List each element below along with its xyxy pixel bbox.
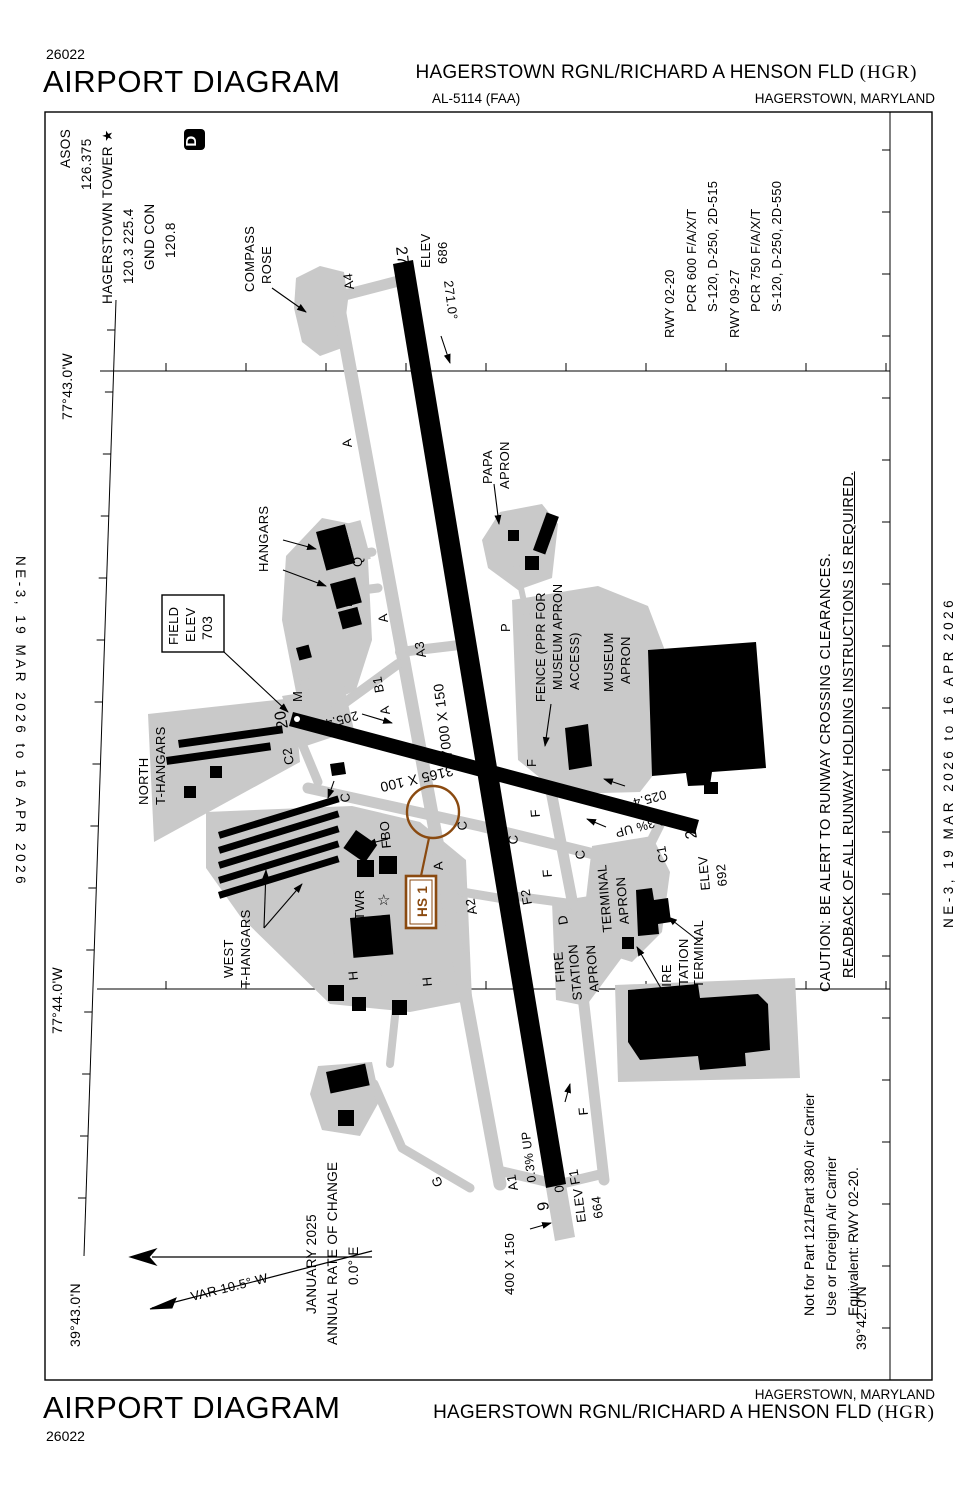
taxiway-label: A2 bbox=[462, 897, 480, 916]
taxiway-label: Q bbox=[350, 557, 365, 567]
variation-rate-value: 0.0° E bbox=[346, 1246, 361, 1285]
west-t-hangars-label: T-HANGARS bbox=[238, 909, 253, 988]
note-line3: Equivalent: RWY 02-20. bbox=[845, 1167, 861, 1316]
longitude-label: 77°43.0'W bbox=[59, 353, 75, 420]
elev-692-value: 692 bbox=[713, 863, 730, 887]
fence-note: MUSEUM APRON bbox=[551, 584, 565, 690]
caution-line2: READBACK OF ALL RUNWAY HOLDING INSTRUCTI… bbox=[841, 471, 857, 978]
fbo-label: FBO bbox=[377, 820, 394, 849]
note-line1: Not for Part 121/Part 380 Air Carrier bbox=[801, 1093, 817, 1316]
rwy-02-20-pcr: PCR 600 F/A/X/T bbox=[684, 209, 699, 312]
tower-label: HAGERSTOWN TOWER ★ bbox=[100, 129, 116, 304]
asos-label: ASOS bbox=[58, 129, 73, 168]
rwy-09-27-pcr: PCR 750 F/A/X/T bbox=[748, 209, 763, 312]
tower-freqs: 120.3 225.4 bbox=[121, 208, 136, 284]
papa-apron-label: APRON bbox=[497, 441, 512, 489]
taxiway-label: C1 bbox=[653, 845, 671, 865]
taxiway-label: A bbox=[339, 438, 355, 449]
taxiway-label: A bbox=[430, 861, 446, 871]
elev-686-label: ELEV bbox=[418, 234, 433, 268]
city-state-bottom: HAGERSTOWN, MARYLAND bbox=[500, 1387, 935, 1402]
tower-label: TWR bbox=[352, 890, 367, 921]
airport-name-text: HAGERSTOWN RGNL/RICHARD A HENSON FLD bbox=[433, 1402, 877, 1423]
runway-27-number: 27 bbox=[392, 245, 411, 265]
hotspot-label: HS 1 bbox=[415, 886, 430, 917]
airport-diagram-page: 26022 AIRPORT DIAGRAM HAGERSTOWN RGNL/RI… bbox=[0, 0, 978, 1500]
airport-id-text: (HGR) bbox=[877, 1402, 935, 1423]
fire-station-label: FIRE bbox=[659, 964, 674, 995]
taxiway-label: F1 bbox=[565, 1168, 583, 1186]
note-line2: Use or Foreign Air Carrier bbox=[823, 1157, 839, 1317]
gnd-con-freq: 120.8 bbox=[163, 222, 178, 258]
rwy27-bearing: 271.0° bbox=[441, 280, 461, 321]
taxiway-label: A bbox=[377, 705, 393, 716]
north-t-hangars-label: NORTH bbox=[136, 758, 151, 805]
taxiway-label: B1 bbox=[369, 675, 387, 694]
gnd-con-label: GND CON bbox=[142, 203, 157, 270]
compass-rose-label: ROSE bbox=[259, 246, 274, 284]
field-elev-value: 703 bbox=[199, 616, 215, 640]
asos-freq: 126.375 bbox=[79, 138, 94, 190]
taxiway-label: C bbox=[572, 849, 588, 860]
taxiway-label: P bbox=[498, 623, 513, 632]
taxiway-label: C bbox=[505, 834, 521, 845]
taxiway-label: A4 bbox=[340, 272, 357, 290]
elev-686-value: 686 bbox=[435, 241, 450, 264]
caution-line1: CAUTION: BE ALERT TO RUNWAY CROSSING CLE… bbox=[818, 553, 834, 992]
taxiway-label: C bbox=[337, 792, 353, 803]
chart-code-bottom: 26022 bbox=[46, 1428, 85, 1444]
rwy-9-27-dimensions: 7000 X 150 bbox=[430, 683, 455, 759]
taxiway-label: C2 bbox=[279, 747, 297, 767]
latitude-label: 39°43.0'N bbox=[67, 1283, 83, 1347]
tower-star-icon: ☆ bbox=[377, 892, 391, 909]
fence-note: FENCE (PPR FOR bbox=[534, 592, 548, 702]
rwy-02-20-label: RWY 02-20 bbox=[662, 269, 677, 338]
museum-apron-label: APRON bbox=[618, 636, 633, 684]
taxiway-label: F bbox=[527, 809, 543, 819]
rwy-09-27-label: RWY 09-27 bbox=[727, 269, 742, 338]
taxiway-label: F2 bbox=[517, 888, 535, 906]
rwy20-threshold-point bbox=[294, 716, 300, 722]
hangars-label: HANGARS bbox=[256, 506, 271, 572]
elev-664-label: ELEV bbox=[570, 1187, 589, 1223]
taxiway-label: N1 bbox=[340, 590, 355, 607]
museum-apron-label: MUSEUM bbox=[601, 632, 616, 692]
taxiway-label: A1 bbox=[503, 1173, 521, 1192]
variation-rate-label: ANNUAL RATE OF CHANGE bbox=[325, 1162, 340, 1345]
stopway-dimensions: 400 X 150 bbox=[502, 1233, 517, 1295]
elev-664-value: 664 bbox=[588, 1195, 606, 1219]
taxiway-label: C bbox=[454, 820, 470, 831]
elev-692-label: ELEV bbox=[695, 855, 713, 891]
variation-label: VAR 10.5° W bbox=[189, 1270, 270, 1304]
taxiway-label: A3 bbox=[411, 640, 429, 659]
runway-20-number: 20 bbox=[272, 709, 292, 730]
taxiway-label: H bbox=[345, 970, 361, 981]
runway-9-number: 9 bbox=[535, 1200, 553, 1211]
d-atis-symbol: D bbox=[183, 135, 200, 146]
variation-date-label: JANUARY 2025 bbox=[304, 1214, 319, 1314]
taxiway-label: M bbox=[290, 691, 305, 702]
rwy-02-20-strength: S-120, D-250, 2D-515 bbox=[705, 181, 720, 312]
papa-apron-label: PAPA bbox=[480, 450, 495, 484]
airport-name-bottom: HAGERSTOWN RGNL/RICHARD A HENSON FLD (HG… bbox=[398, 1402, 935, 1424]
compass-rose-label: COMPASS bbox=[242, 226, 257, 292]
longitude-label: 77°44.0'W bbox=[49, 967, 65, 1034]
page-title-bottom: AIRPORT DIAGRAM bbox=[43, 1390, 340, 1426]
field-elev-label: FIELD bbox=[166, 607, 181, 645]
fire-station-label: STATION bbox=[676, 938, 691, 995]
field-elev-label: ELEV bbox=[183, 608, 198, 642]
beacon-icon bbox=[330, 762, 346, 776]
taxiway-label: F bbox=[575, 1107, 591, 1117]
taxiway-label: F bbox=[524, 759, 539, 767]
fence-note: ACCESS) bbox=[568, 632, 582, 690]
rwy-09-27-strength: S-120, D-250, 2D-550 bbox=[769, 181, 784, 312]
west-t-hangars-label: WEST bbox=[221, 939, 236, 978]
taxiway-label: A bbox=[375, 613, 391, 624]
taxiway-label: F bbox=[539, 869, 555, 879]
terminal-label: TERMINAL bbox=[691, 920, 706, 988]
north-t-hangars-label: T-HANGARS bbox=[153, 726, 168, 805]
taxiway-label: H bbox=[419, 976, 435, 987]
